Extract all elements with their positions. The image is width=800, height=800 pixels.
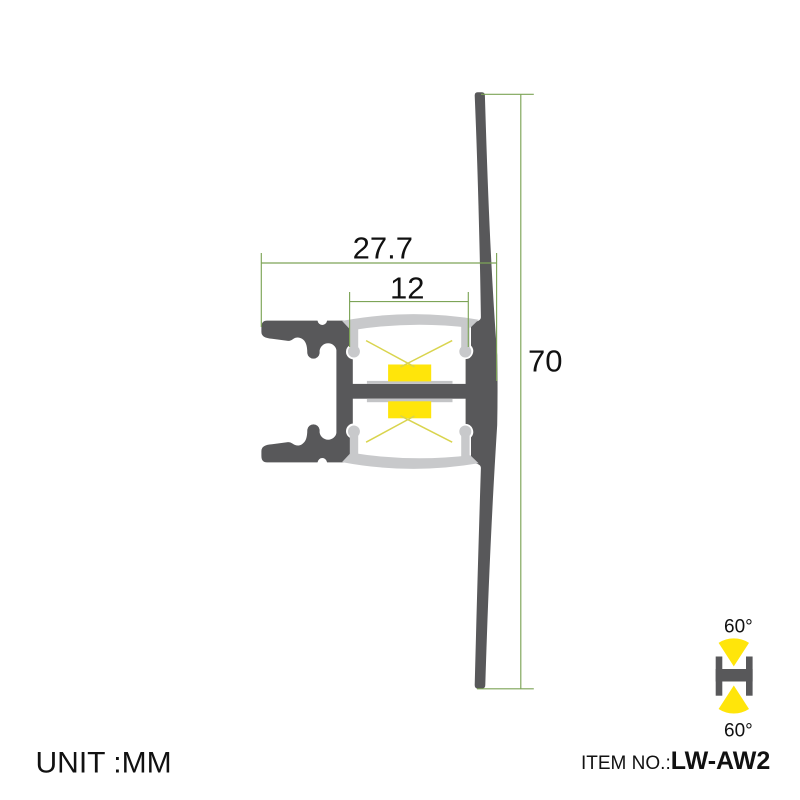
svg-text:60°: 60°	[724, 721, 753, 742]
svg-text:27.7: 27.7	[353, 230, 413, 265]
svg-text:12: 12	[390, 271, 424, 306]
svg-text:70: 70	[528, 344, 562, 379]
svg-text:60°: 60°	[724, 617, 753, 638]
svg-text:UNIT :MM: UNIT :MM	[36, 747, 172, 780]
